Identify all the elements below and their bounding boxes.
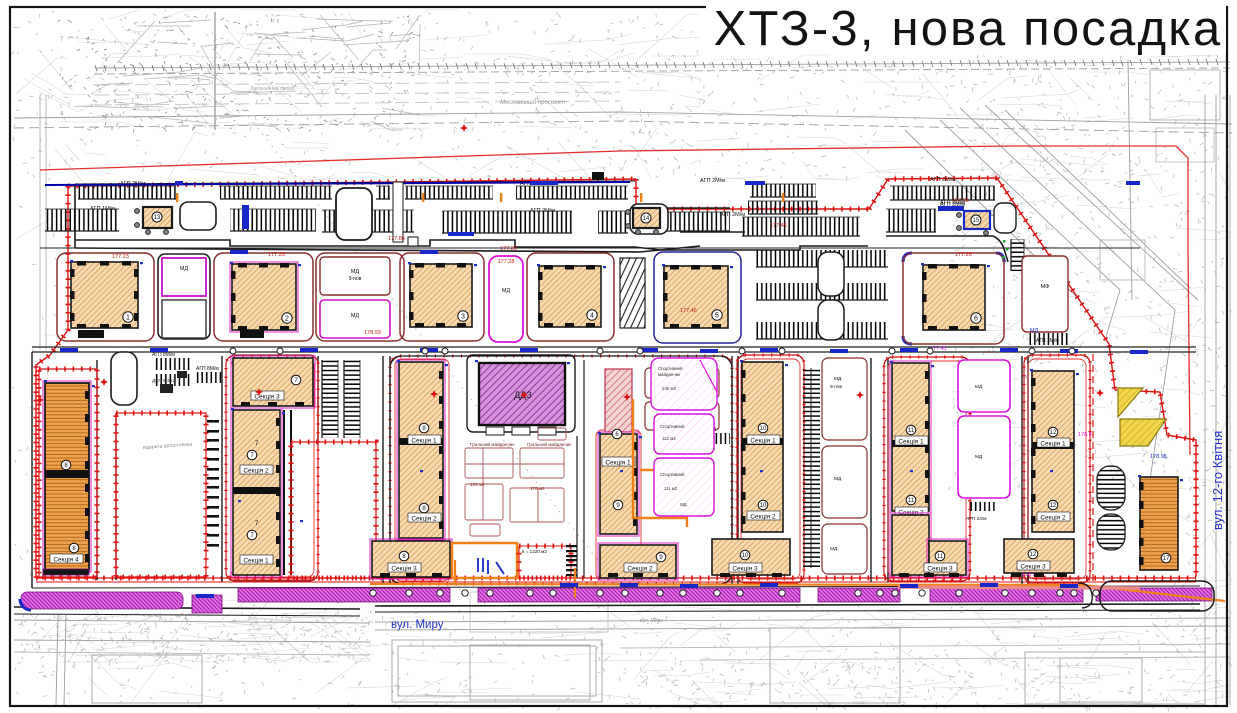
svg-text:Секція 3: Секція 3 bbox=[927, 565, 953, 573]
svg-text:МД: МД bbox=[1030, 328, 1039, 334]
svg-text:МД: МД bbox=[502, 288, 511, 294]
svg-text:1: 1 bbox=[126, 315, 130, 322]
svg-text:177.26: 177.26 bbox=[955, 252, 972, 258]
svg-text:240 м2: 240 м2 bbox=[662, 386, 677, 391]
svg-text:177.23: 177.23 bbox=[112, 254, 129, 260]
svg-text:10: 10 bbox=[760, 426, 767, 432]
svg-text:9-пов: 9-пов bbox=[830, 384, 843, 390]
svg-text:МД: МД bbox=[830, 546, 838, 552]
svg-text:АГП 2М/м: АГП 2М/м bbox=[700, 178, 725, 184]
svg-text:майданчик: майданчик bbox=[658, 372, 680, 377]
svg-text:МФ: МФ bbox=[1041, 284, 1050, 290]
svg-text:АГП 2М/м: АГП 2М/м bbox=[930, 177, 955, 183]
svg-text:МД: МД bbox=[975, 384, 983, 390]
svg-text:МД: МД bbox=[351, 269, 360, 275]
svg-text:17: 17 bbox=[1163, 556, 1170, 562]
svg-text:Спортивний: Спортивний bbox=[658, 366, 683, 371]
svg-text:Секція 2: Секція 2 bbox=[750, 513, 776, 521]
svg-text:Залізничний проїзд: Залізничний проїзд bbox=[250, 85, 295, 92]
svg-text:ХТЗ-3, нова посадка: ХТЗ-3, нова посадка bbox=[714, 2, 1223, 56]
svg-text:177.23: 177.23 bbox=[268, 252, 285, 258]
svg-text:Секція 3: Секція 3 bbox=[732, 565, 758, 573]
svg-text:9-пов: 9-пов bbox=[349, 276, 362, 282]
svg-text:14: 14 bbox=[643, 216, 650, 222]
svg-text:МД: МД bbox=[834, 476, 842, 482]
svg-text:Секція 3: Секція 3 bbox=[391, 565, 417, 573]
svg-text:170 м2: 170 м2 bbox=[530, 486, 545, 491]
svg-text:11: 11 bbox=[908, 498, 915, 504]
svg-text:3: 3 bbox=[461, 314, 465, 321]
svg-text:4: 4 bbox=[590, 313, 594, 320]
svg-text:5: 5 bbox=[715, 313, 719, 320]
svg-text:АГП 24/м: АГП 24/м bbox=[966, 516, 987, 522]
svg-text:112 м2: 112 м2 bbox=[662, 436, 676, 441]
svg-text:МД: МД bbox=[351, 313, 360, 319]
svg-text:Секція 1: Секція 1 bbox=[1040, 440, 1066, 448]
svg-text:2: 2 bbox=[285, 316, 289, 323]
svg-text:177.86: 177.86 bbox=[388, 236, 405, 242]
svg-text:Секція 2: Секція 2 bbox=[627, 565, 653, 573]
svg-text:вул. Миру: вул. Миру bbox=[391, 619, 444, 631]
svg-text:177.45: 177.45 bbox=[770, 223, 787, 229]
svg-text:Секція 1: Секція 1 bbox=[898, 438, 924, 446]
svg-text:10: 10 bbox=[742, 553, 749, 559]
svg-text:Секція 1: Секція 1 bbox=[243, 557, 269, 565]
svg-text:Секція 1: Секція 1 bbox=[750, 437, 776, 445]
svg-text:вул. 12-го Квітня: вул. 12-го Квітня bbox=[1210, 431, 1225, 530]
svg-text:вул. Миру: вул. Миру bbox=[640, 618, 663, 624]
svg-text:11: 11 bbox=[908, 428, 915, 434]
svg-text:126 м2: 126 м2 bbox=[470, 482, 485, 487]
svg-text:Секція 3: Секція 3 bbox=[1020, 563, 1046, 571]
svg-text:10: 10 bbox=[760, 503, 767, 509]
svg-text:Спортивний: Спортивний bbox=[660, 472, 685, 477]
svg-text:178.95: 178.95 bbox=[1150, 454, 1167, 460]
svg-text:ДСП 8х6х2: ДСП 8х6х2 bbox=[152, 378, 176, 383]
svg-text:Секція 1: Секція 1 bbox=[605, 459, 631, 467]
svg-text:Секція 2: Секція 2 bbox=[411, 515, 437, 523]
svg-text:Спортивний: Спортивний bbox=[660, 424, 685, 429]
svg-text:АГП 2М/м: АГП 2М/м bbox=[720, 212, 745, 218]
svg-text:11: 11 bbox=[937, 554, 944, 560]
svg-text:в = 1220 м2: в = 1220 м2 bbox=[522, 549, 547, 554]
svg-text:АГП 8М/м: АГП 8М/м bbox=[196, 366, 219, 372]
svg-text:Секція 1: Секція 1 bbox=[411, 437, 437, 445]
svg-text:13: 13 bbox=[154, 215, 161, 221]
svg-text:АГП 2М/м: АГП 2М/м bbox=[1036, 338, 1059, 344]
svg-text:178.93: 178.93 bbox=[364, 330, 381, 336]
svg-text:Гральний майданчик: Гральний майданчик bbox=[527, 441, 572, 447]
svg-text:177.28: 177.28 bbox=[952, 198, 969, 204]
svg-text:178.6: 178.6 bbox=[1078, 432, 1092, 438]
svg-text:6: 6 bbox=[974, 316, 978, 323]
svg-text:177.28: 177.28 bbox=[500, 246, 517, 252]
svg-text:Гральний майданчик: Гральний майданчик bbox=[470, 441, 515, 447]
svg-text:12: 12 bbox=[1030, 552, 1037, 558]
svg-text:15: 15 bbox=[973, 218, 980, 224]
svg-text:МД: МД bbox=[680, 502, 687, 507]
svg-text:177.28: 177.28 bbox=[498, 259, 515, 265]
svg-text:Секція 2: Секція 2 bbox=[243, 467, 269, 475]
svg-text:111 м2: 111 м2 bbox=[664, 486, 678, 491]
svg-text:177.46: 177.46 bbox=[680, 308, 697, 314]
svg-text:АГП 8М/м: АГП 8М/м bbox=[152, 352, 175, 358]
svg-text:АГП 2М/м: АГП 2М/м bbox=[530, 208, 555, 214]
svg-text:Московський проспект: Московський проспект bbox=[500, 99, 565, 106]
svg-text:МД: МД bbox=[834, 376, 842, 382]
svg-text:МД: МД bbox=[180, 266, 189, 272]
svg-text:Секція 2: Секція 2 bbox=[1040, 514, 1066, 522]
svg-text:Секція 4: Секція 4 bbox=[53, 556, 79, 564]
svg-text:АГП 1М/м: АГП 1М/м bbox=[90, 206, 115, 212]
svg-text:178.2: 178.2 bbox=[1022, 572, 1036, 578]
svg-text:МД: МД bbox=[975, 454, 983, 460]
svg-text:12: 12 bbox=[1050, 430, 1057, 436]
svg-text:12: 12 bbox=[1050, 503, 1057, 509]
